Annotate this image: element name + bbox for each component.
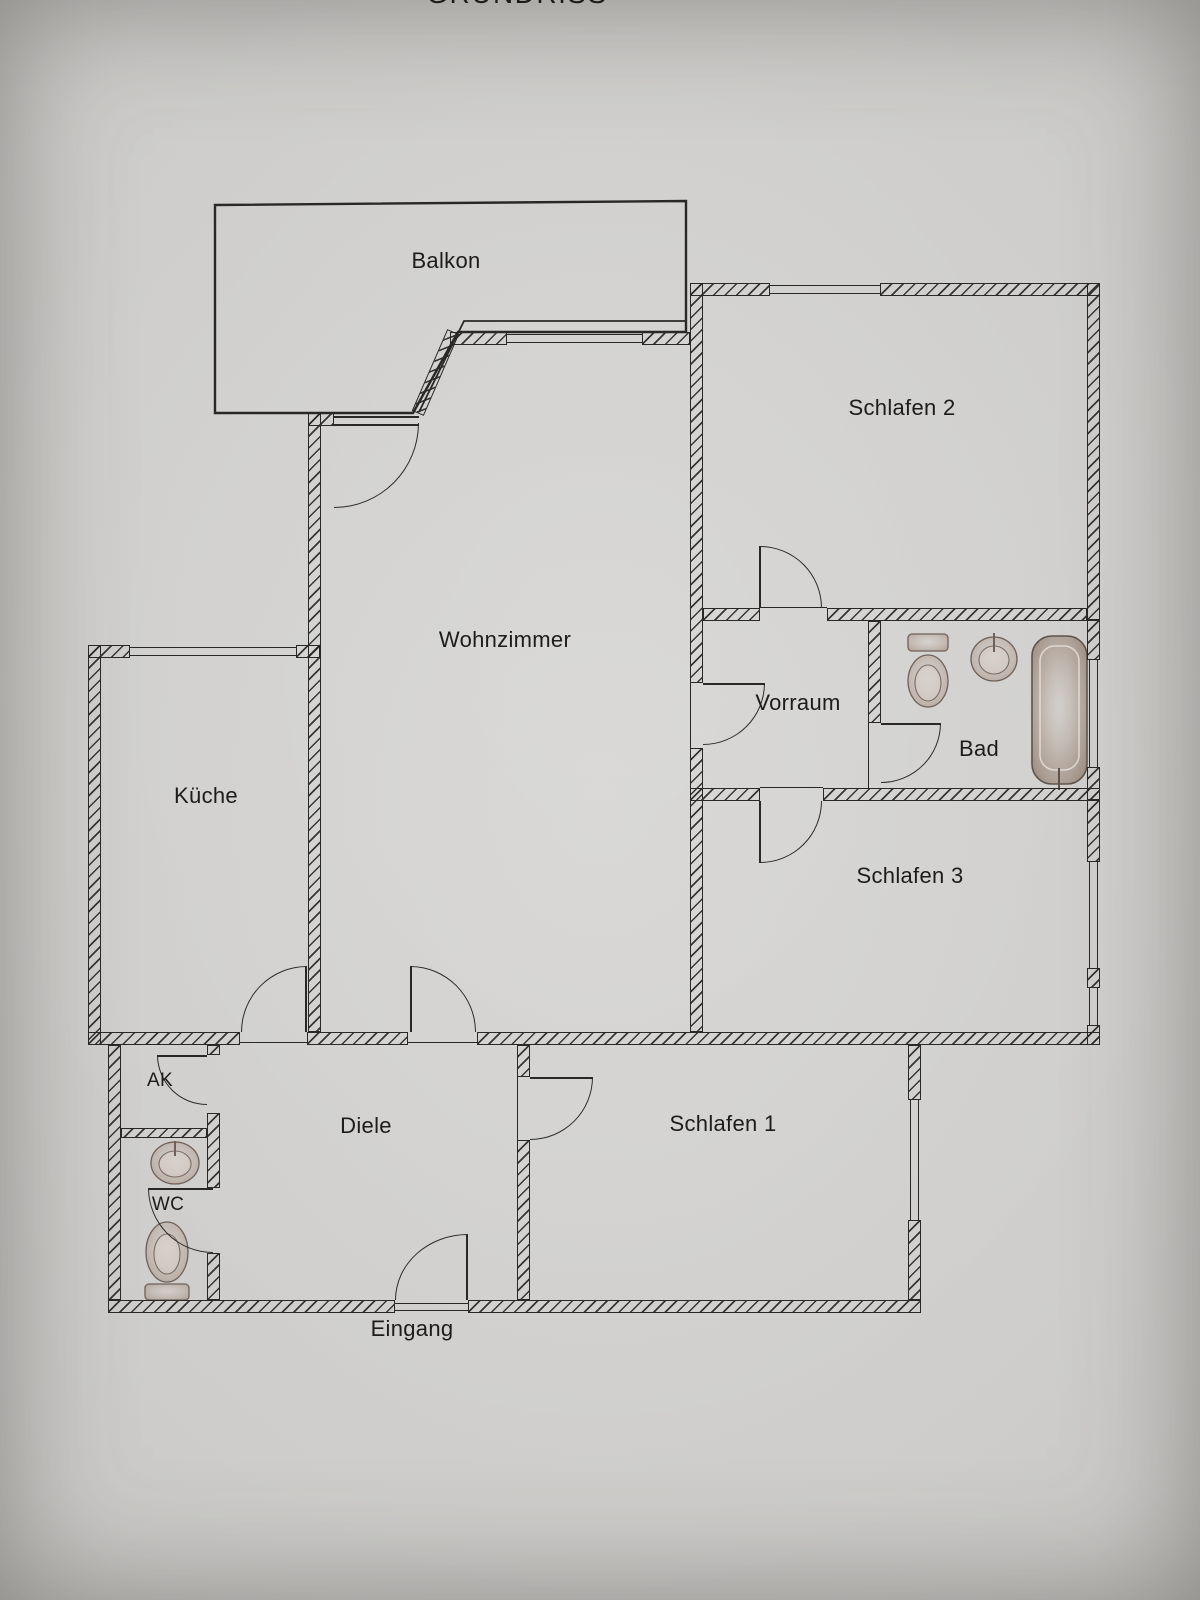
wc-sink-icon [151, 1141, 199, 1184]
wall [88, 645, 130, 658]
room-label-bad: Bad [959, 736, 999, 762]
wall [468, 1300, 921, 1313]
room-label-schlafen2: Schlafen 2 [849, 395, 956, 421]
window-schlafen1 [910, 1100, 919, 1220]
balcony-outline [215, 201, 686, 413]
floorplan: GRUNDRISS [0, 0, 1200, 1600]
wall [690, 283, 703, 683]
door-arc-wohnzimmer [410, 966, 476, 1032]
room-label-schlafen3: Schlafen 3 [857, 863, 964, 889]
wall [642, 332, 690, 345]
floorplan-photo: GRUNDRISS [0, 0, 1200, 1600]
wall [477, 1032, 1100, 1045]
wall [88, 1032, 240, 1045]
door-jamb-bad [868, 723, 869, 788]
bad-sink-icon [971, 633, 1017, 681]
room-label-ak: AK [147, 1070, 173, 1092]
wall [207, 1253, 220, 1300]
page-title-cropped: GRUNDRISS [426, 0, 608, 10]
window-schlafen2 [770, 285, 880, 294]
bad-toilet-icon [908, 634, 948, 707]
wall [908, 1220, 921, 1300]
window-bad [1089, 660, 1098, 767]
door-jamb-vorraum [690, 683, 691, 748]
wall [108, 1300, 395, 1313]
wall [823, 788, 1100, 801]
wall [1087, 800, 1100, 862]
wall [308, 413, 334, 426]
wall [121, 1128, 207, 1138]
wall [1087, 283, 1100, 620]
room-label-wc: WC [152, 1194, 184, 1216]
bathtub-icon [1032, 636, 1087, 790]
wall [517, 1045, 530, 1077]
wall [880, 283, 1100, 296]
wall [908, 1045, 921, 1100]
wall [207, 1045, 220, 1055]
wall [703, 608, 760, 621]
wall [1087, 968, 1100, 988]
wall [827, 608, 1087, 621]
door-arc-eingang [395, 1234, 468, 1300]
door-arc-schlafen3 [760, 801, 822, 863]
window-schlafen3-b [1089, 988, 1098, 1025]
wall [307, 1032, 408, 1045]
wall [207, 1113, 220, 1188]
door-jamb-schlafen3 [760, 787, 823, 788]
room-label-diele: Diele [340, 1113, 392, 1139]
door-jamb-schlafen1 [517, 1077, 518, 1140]
door-arc-schlafen1 [530, 1077, 593, 1140]
window-schlafen3-a [1089, 862, 1098, 968]
room-label-wohnzimmer: Wohnzimmer [439, 627, 571, 653]
wall [690, 788, 760, 801]
door-arc-kueche [241, 966, 307, 1032]
window-wohnzimmer [507, 334, 642, 343]
door-arc-schlafen2 [760, 546, 822, 608]
door-arc-bad [881, 723, 941, 783]
wall [868, 621, 881, 723]
wall [308, 413, 321, 1032]
door-threshold-kueche [240, 1042, 307, 1043]
door-arc-balkon [334, 423, 419, 508]
room-label-vorraum: Vorraum [755, 690, 840, 716]
wall [108, 1045, 121, 1300]
annotation-eingang: Eingang [371, 1316, 454, 1342]
wall [1087, 620, 1100, 660]
room-label-balkon: Balkon [411, 248, 480, 274]
window-kueche [130, 647, 296, 656]
room-label-schlafen1: Schlafen 1 [670, 1111, 777, 1137]
entrance-threshold [395, 1303, 468, 1311]
room-label-kueche: Küche [174, 783, 238, 809]
wall [517, 1140, 530, 1300]
door-threshold-wohnzimmer [408, 1042, 477, 1043]
wall [450, 332, 507, 345]
wall [88, 645, 101, 1045]
